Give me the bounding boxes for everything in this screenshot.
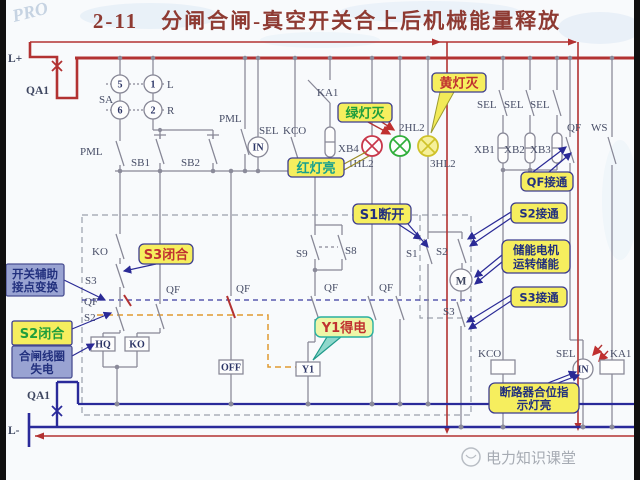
sa-r-label: R	[167, 105, 175, 117]
hl2-2-label: 2HL2	[399, 122, 425, 134]
qf-label-1: QF	[166, 284, 180, 296]
lamp-3hl2	[418, 136, 438, 156]
y1-coil: Y1	[302, 365, 314, 376]
sa-pos-5: 5	[118, 80, 123, 91]
kco-bottom-label: KCO	[478, 348, 501, 360]
off-coil: OFF	[221, 363, 241, 374]
ka1-bottom-label: KA1	[610, 348, 631, 360]
callout-s1-open-text: S1断开	[360, 207, 404, 223]
callout-s3-on-text: S3接通	[519, 291, 559, 305]
s8-label: S8	[345, 245, 357, 257]
sel-r3-label: SEL	[530, 99, 550, 111]
in-lamp-left-label: IN	[252, 143, 264, 154]
callout-closing-coil-line1: 合闸线圈	[19, 349, 65, 363]
ko-coil: KO	[129, 340, 145, 351]
ko-contact-label: KO	[92, 246, 108, 258]
s3-left-label: S3	[85, 275, 97, 287]
xb1-label: XB1	[474, 144, 495, 156]
terminal-l-plus: L+	[8, 53, 22, 65]
qf-label-3: QF	[324, 282, 338, 294]
s9-label: S9	[296, 248, 308, 260]
pml-label-1: PML	[80, 146, 103, 158]
sa-label: SA	[99, 94, 113, 106]
s2-mid-label: S2	[436, 246, 448, 258]
qf-label-0: QF	[84, 296, 98, 308]
qf-label-4: QF	[379, 282, 393, 294]
qf-top-label: QF	[567, 122, 581, 134]
kco-left-label: KCO	[283, 125, 306, 137]
hq-coil: HQ	[95, 340, 111, 351]
callout-qf-closed-text: QF接通	[527, 175, 568, 189]
terminal-l-minus: L-	[8, 425, 20, 437]
page-title: 2-11 分闸合闸-真空开关合上后机械能量释放	[93, 9, 561, 33]
in-lamp-right-label: IN	[577, 365, 589, 376]
motor-m: M	[450, 269, 472, 291]
callout-s2-closed-text: S2闭合	[20, 326, 65, 342]
screenshot-root: PRO 2-11 分闸合闸-真空开关合上后机械能量释放 5 1 6 2	[0, 0, 640, 480]
sb1-label: SB1	[131, 157, 150, 169]
motor-label: M	[456, 276, 467, 288]
s3-mid-label: S3	[443, 306, 455, 318]
sa-l-label: L	[167, 79, 174, 91]
xb3-label: XB3	[530, 144, 551, 156]
callout-yellow-light-off-text: 黄灯灭	[439, 76, 479, 92]
callout-aux-contact-line2: 接点变换	[12, 280, 58, 294]
watermark-text: 电力知识课堂	[486, 449, 576, 467]
terminal-qa1-bottom: QA1	[27, 390, 50, 402]
sa-pos-2: 2	[151, 106, 156, 117]
callout-storage-motor-line1: 储能电机	[513, 243, 559, 257]
callout-storage-motor-line2: 运转储能	[513, 257, 559, 271]
callout-breaker-indicator-line1: 断路器合位指	[500, 385, 569, 399]
lamp-2hl2	[390, 136, 410, 156]
ws-label: WS	[591, 122, 608, 134]
hl2-3-label: 3HL2	[430, 158, 456, 170]
sel-bottom-label: SEL	[556, 348, 576, 360]
sel-r1-label: SEL	[477, 99, 497, 111]
sb2-label: SB2	[181, 157, 200, 169]
sa-pos-1: 1	[151, 80, 156, 91]
callout-s3-closed-text: S3闭合	[144, 247, 189, 263]
callout-y1-energized-text: Y1得电	[321, 320, 366, 336]
ka1-top-label: KA1	[317, 87, 338, 99]
sel-r2-label: SEL	[504, 99, 524, 111]
callout-closing-coil-line2: 失电	[31, 362, 54, 376]
qf-label-2: QF	[236, 283, 250, 295]
pml-label-2: PML	[219, 113, 242, 125]
callout-aux-contact-line1: 开关辅助	[12, 267, 58, 281]
s1-label: S1	[406, 248, 418, 260]
circuit-diagram: PRO 2-11 分闸合闸-真空开关合上后机械能量释放 5 1 6 2	[0, 0, 640, 480]
xb2-label: XB2	[504, 144, 525, 156]
in-lamp-left: IN	[248, 137, 268, 157]
terminal-qa1-top: QA1	[26, 85, 49, 97]
sa-pos-6: 6	[118, 106, 123, 117]
callout-breaker-indicator-line2: 示灯亮	[516, 398, 552, 412]
xb4-label: XB4	[338, 143, 359, 155]
callout-green-light-off-text: 绿灯灭	[345, 106, 385, 122]
callout-red-light-on-text: 红灯亮	[296, 161, 335, 177]
callout-s2-on-text: S2接通	[519, 207, 559, 221]
sel-left-label: SEL	[259, 125, 279, 137]
